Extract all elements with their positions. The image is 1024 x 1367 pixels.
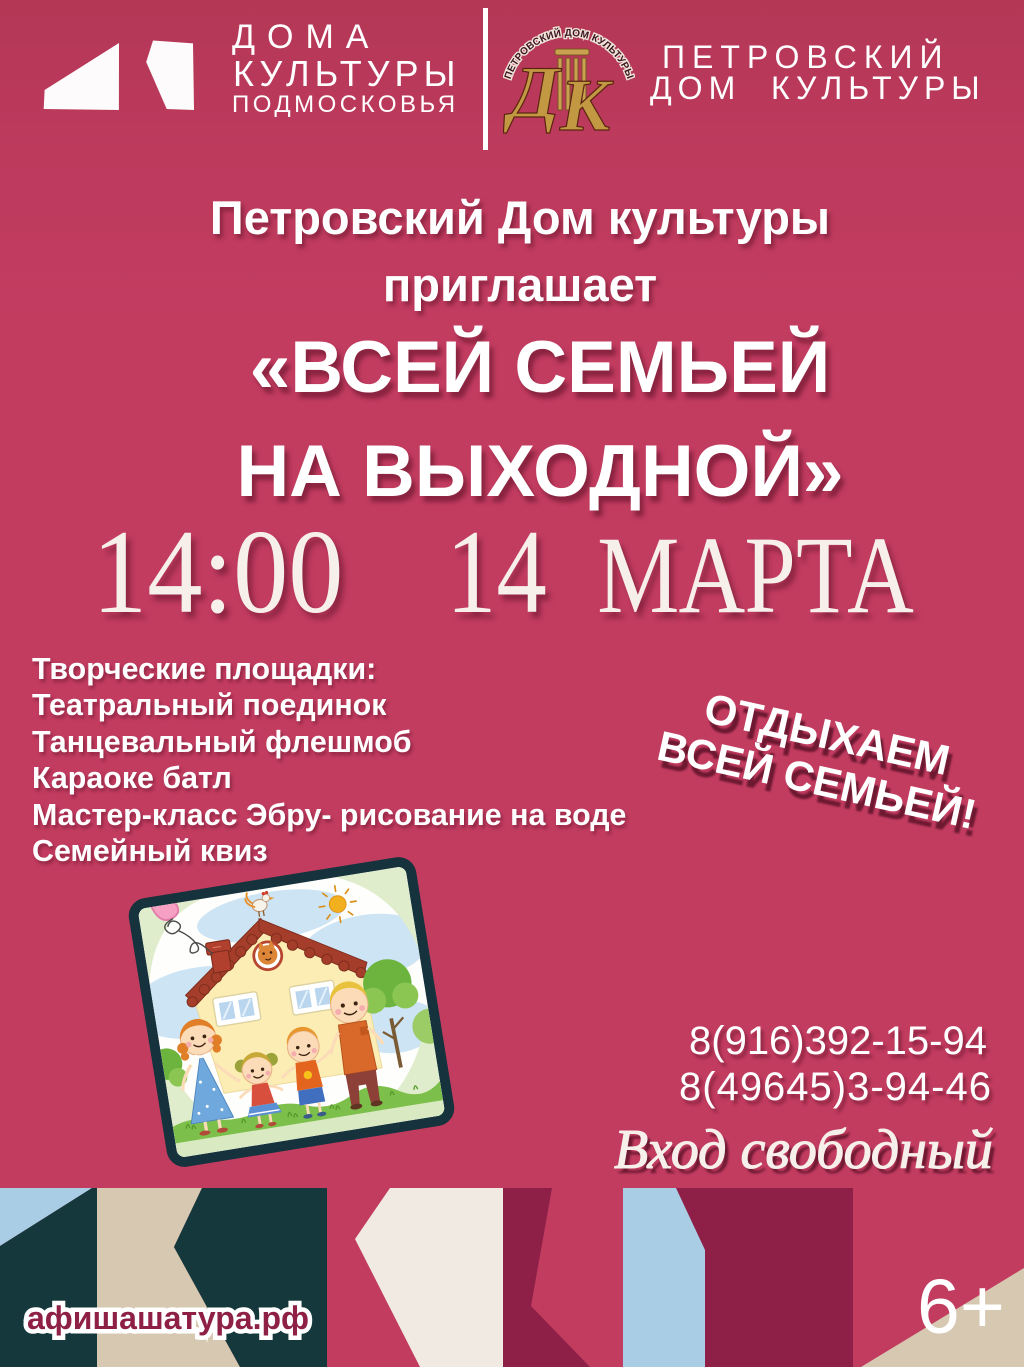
svg-text:К: К xyxy=(559,65,614,146)
svg-text:Д: Д xyxy=(503,52,562,134)
